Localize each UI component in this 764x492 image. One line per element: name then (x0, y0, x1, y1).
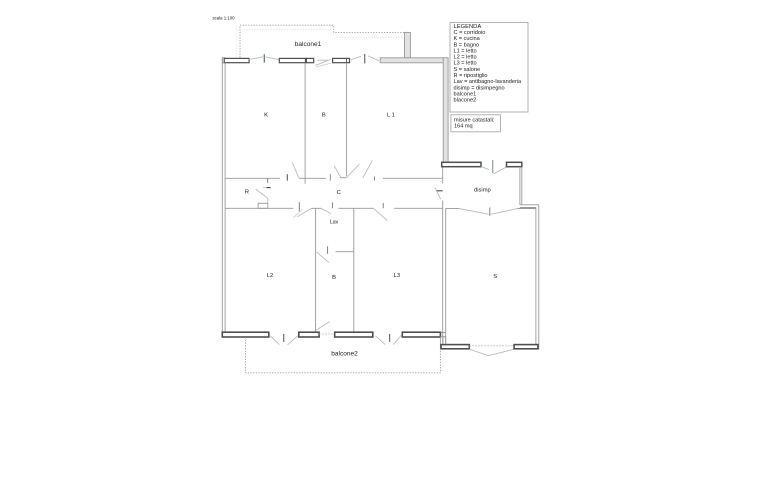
svg-text:L3 = letto: L3 = letto (454, 61, 477, 67)
svg-text:K: K (264, 112, 268, 118)
svg-text:disimp: disimp (474, 188, 491, 194)
svg-text:164 mq: 164 mq (454, 124, 473, 130)
svg-text:LEGENDA: LEGENDA (454, 24, 482, 30)
svg-text:B: B (322, 112, 326, 118)
svg-text:K = cucina: K = cucina (454, 36, 481, 42)
svg-text:Lav = antibagno-lavanderia: Lav = antibagno-lavanderia (454, 79, 523, 85)
svg-text:balcone1: balcone1 (454, 92, 477, 98)
svg-text:L3: L3 (394, 273, 400, 279)
svg-text:scala 1:100: scala 1:100 (213, 16, 236, 21)
svg-text:S = salone: S = salone (454, 67, 481, 73)
svg-text:R: R (245, 189, 249, 195)
svg-text:C = corridoio: C = corridoio (454, 30, 486, 36)
svg-text:balcone2: balcone2 (331, 350, 358, 357)
svg-text:B = bagno: B = bagno (454, 42, 480, 48)
svg-text:blacone2: blacone2 (454, 98, 477, 104)
svg-text:disimp = disimpegno: disimp = disimpegno (454, 85, 505, 91)
svg-text:L2 = letto: L2 = letto (454, 55, 477, 61)
svg-text:S: S (493, 274, 497, 280)
svg-text:Lav: Lav (330, 220, 339, 226)
svg-text:B: B (332, 275, 336, 281)
svg-text:C: C (337, 190, 341, 196)
svg-text:balcone1: balcone1 (295, 41, 322, 48)
svg-text:L1 = letto: L1 = letto (454, 48, 477, 54)
svg-text:L2: L2 (267, 273, 273, 279)
svg-text:L 1: L 1 (387, 112, 395, 118)
svg-text:R = ripostiglio: R = ripostiglio (454, 73, 488, 79)
svg-text:misure catastali:: misure catastali: (454, 117, 495, 123)
